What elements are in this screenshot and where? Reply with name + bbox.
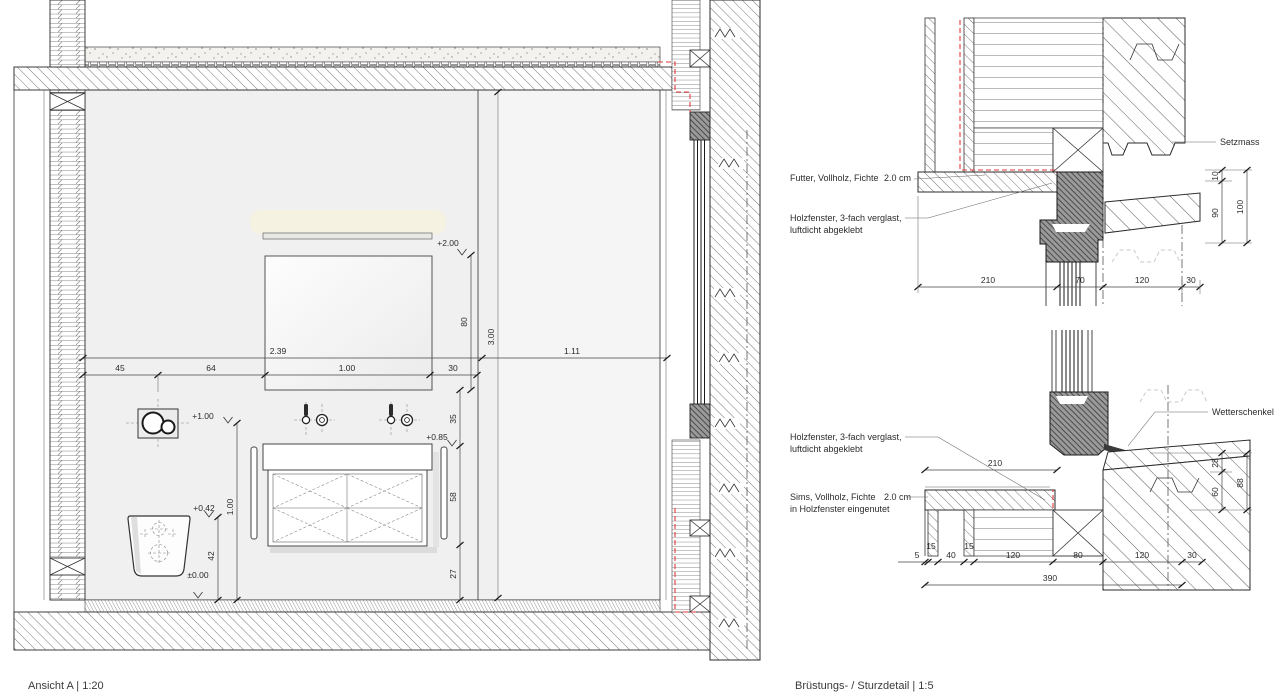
- dim-210: 210: [981, 275, 995, 285]
- caption-detail: Brüstungs- / Sturzdetail | 1:5: [795, 680, 934, 692]
- toilet: [128, 516, 190, 576]
- frame-seal: [1052, 224, 1090, 232]
- futter-board: [918, 172, 1057, 192]
- dim-120a: 120: [1006, 550, 1020, 560]
- window-frame-sill: [690, 404, 710, 438]
- timber-block-icon: [50, 558, 85, 575]
- glazing: [1052, 330, 1092, 392]
- dim-100: 100: [1235, 200, 1245, 214]
- dim-120b: 120: [1135, 550, 1149, 560]
- dim-40: 40: [946, 550, 956, 560]
- interior-board: [925, 18, 935, 172]
- dim-10: 10: [1210, 171, 1220, 181]
- sill-detail: Holzfenster, 3-fach verglast, luftdicht …: [790, 330, 1274, 692]
- timber-block-icon: [690, 520, 710, 536]
- washbasin-counter: [263, 444, 432, 470]
- label-futter-size: 2.0 cm: [884, 173, 911, 183]
- timber-block-icon: [690, 596, 710, 612]
- level-plus-085: +0.85: [426, 432, 448, 442]
- architectural-drawing-sheet: 2.39 1.11 45 64 1.00 30 3.00 +2.00 80 35…: [0, 0, 1280, 700]
- label-window-2: luftdicht abgeklebt: [790, 444, 863, 454]
- window-wall-section: [658, 0, 760, 660]
- dim-88: 88: [1235, 478, 1245, 488]
- dim-120: 120: [1135, 275, 1149, 285]
- level-zero: ±0.00: [187, 570, 208, 580]
- window-glazing: [694, 140, 705, 404]
- label-futter: Futter, Vollholz, Fichte: [790, 173, 879, 183]
- dim-28: 28: [1210, 458, 1220, 468]
- window-frame-head: [690, 112, 710, 140]
- towel-right: [441, 447, 447, 539]
- lintel-detail: Futter, Vollholz, Fichte 2.0 cm Holzfens…: [790, 18, 1260, 306]
- sims-board: [925, 490, 1055, 510]
- dim-15b: 15: [964, 541, 974, 551]
- caption-elevation: Ansicht A | 1:20: [28, 680, 104, 692]
- dim-30: 30: [448, 363, 458, 373]
- timber-block-icon: [690, 50, 710, 67]
- frame-seal: [1056, 396, 1088, 404]
- dim-35: 35: [448, 414, 458, 424]
- exterior-reveal: [1105, 193, 1200, 233]
- insulation: [974, 18, 1103, 128]
- level-plus-100: +1.00: [192, 411, 214, 421]
- elevation-view: 2.39 1.11 45 64 1.00 30 3.00 +2.00 80 35…: [14, 0, 760, 692]
- ghost-profile: [1112, 250, 1180, 262]
- dim-30: 30: [1187, 550, 1197, 560]
- dim-80: 80: [1073, 550, 1083, 560]
- masonry: [1103, 456, 1250, 590]
- light-strip: [263, 233, 432, 239]
- dim-100-v: 1.00: [225, 498, 235, 515]
- timber-block-icon: [50, 93, 85, 110]
- timber-block-icon: [1053, 128, 1103, 172]
- dim-60: 60: [1210, 487, 1220, 497]
- level-plus-200: +2.00: [437, 238, 459, 248]
- level-plus-042: +0.42: [193, 503, 215, 513]
- vanity-cabinet: [263, 444, 439, 553]
- masonry: [1103, 18, 1185, 155]
- drawing-canvas: 2.39 1.11 45 64 1.00 30 3.00 +2.00 80 35…: [0, 0, 1280, 700]
- dim-210: 210: [988, 458, 1002, 468]
- label-sims-2: in Holzfenster eingenutet: [790, 504, 890, 514]
- glazing: [1046, 262, 1096, 306]
- label-wetterschenkel: Wetterschenkel: [1212, 407, 1274, 417]
- mirror-light-fixture: [250, 210, 446, 239]
- dim-300: 3.00: [486, 328, 496, 345]
- interior-board: [964, 18, 974, 172]
- dim-58: 58: [448, 492, 458, 502]
- dim-15a: 15: [926, 541, 936, 551]
- light-glow: [250, 210, 446, 234]
- dim-100-h: 1.00: [339, 363, 356, 373]
- insulation: [974, 128, 1053, 172]
- dim-5: 5: [915, 550, 920, 560]
- dim-90: 90: [1210, 208, 1220, 218]
- dim-390: 390: [1043, 573, 1057, 583]
- masonry-column: [710, 0, 760, 660]
- dim-64: 64: [206, 363, 216, 373]
- label-setzmass: Setzmass: [1220, 137, 1260, 147]
- dim-239: 2.39: [270, 346, 287, 356]
- label-window-1: Holzfenster, 3-fach verglast,: [790, 213, 902, 223]
- dim-80: 80: [459, 317, 469, 327]
- ghost-profile: [1140, 390, 1207, 402]
- dim-45: 45: [115, 363, 125, 373]
- dim-70: 70: [1075, 275, 1085, 285]
- label-sims-1: Sims, Vollholz, Fichte: [790, 492, 876, 502]
- floor-section: [14, 600, 710, 650]
- label-window-2: luftdicht abgeklebt: [790, 225, 863, 235]
- left-wall-section: [14, 0, 85, 650]
- dim-42: 42: [206, 551, 216, 561]
- dim-30: 30: [1186, 275, 1196, 285]
- label-window-1: Holzfenster, 3-fach verglast,: [790, 432, 902, 442]
- ceiling-section: [14, 47, 672, 90]
- towel-left: [251, 447, 257, 539]
- dim-111: 1.11: [564, 346, 580, 356]
- dim-27: 27: [448, 569, 458, 579]
